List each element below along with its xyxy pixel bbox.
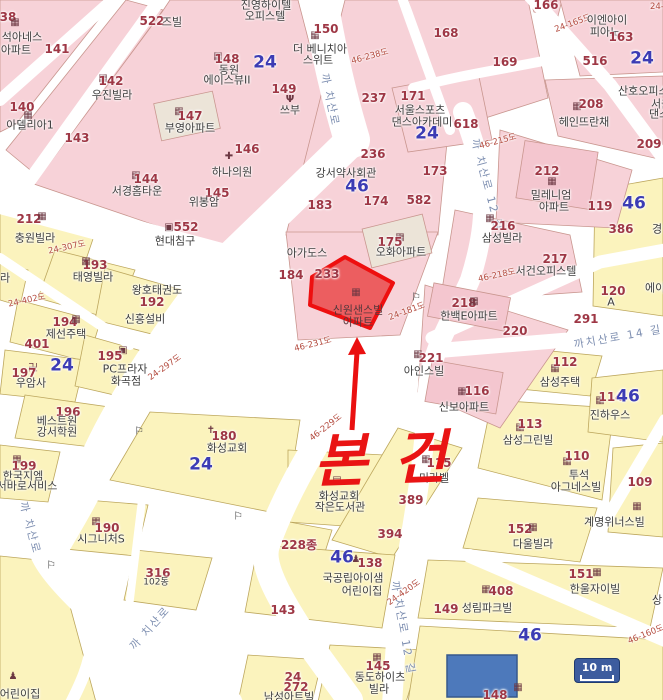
- scale-bar-label: 10 m: [575, 661, 619, 674]
- map-canvas[interactable]: 38▦석아네스아파트141522즈빌▦142우진빌라140▦아델리아1143▦1…: [0, 0, 663, 700]
- map-base-layer: [0, 0, 663, 700]
- scale-bar-ticks: [580, 675, 614, 681]
- subject-annotation: 본건: [313, 427, 474, 491]
- scale-bar: 10 m: [574, 658, 620, 683]
- blue-roof: [447, 655, 517, 697]
